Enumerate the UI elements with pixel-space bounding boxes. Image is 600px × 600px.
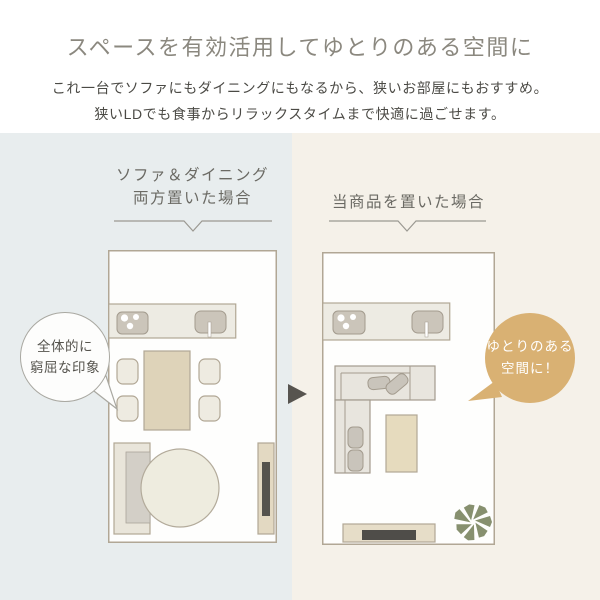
round-rug bbox=[141, 449, 219, 527]
stove-icon bbox=[117, 312, 148, 334]
floorplan-sofa-and-dining bbox=[108, 250, 277, 543]
right-label-pointer-line bbox=[329, 220, 486, 234]
subtitle-line2: 狭いLDでも食事からリラックスタイムまで快適に過ごせます。 bbox=[0, 104, 600, 124]
cushion bbox=[348, 427, 363, 448]
page-title: スペースを有効活用してゆとりのある空間に bbox=[0, 30, 600, 62]
dining-chair bbox=[199, 396, 220, 421]
dining-table bbox=[144, 351, 190, 430]
stove-icon bbox=[333, 311, 365, 334]
right-plan-label-line: 当商品を置いた場合 bbox=[322, 191, 495, 214]
product-table bbox=[386, 415, 417, 472]
tv-screen bbox=[262, 462, 270, 516]
left-label-pointer-line bbox=[114, 220, 272, 234]
cushion bbox=[348, 450, 363, 471]
callout-line1: 全体的に bbox=[37, 336, 93, 357]
subtitle-line1: これ一台でソファにもダイニングにもなるから、狭いお部屋にもおすすめ。 bbox=[0, 78, 600, 98]
left-plan-label: ソファ＆ダイニング 両方置いた場合 bbox=[108, 164, 277, 210]
tv-screen bbox=[362, 530, 416, 540]
right-plan-label: 当商品を置いた場合 bbox=[322, 191, 495, 214]
callout-line2: 窮屈な印象 bbox=[30, 357, 100, 378]
callout-line2: 空間に！ bbox=[501, 358, 559, 380]
arrow-right-icon bbox=[288, 384, 307, 404]
sink-icon bbox=[195, 311, 226, 337]
dining-chair bbox=[199, 359, 220, 384]
roomy-space-callout: ゆとりのある 空間に！ bbox=[485, 313, 575, 403]
left-plan-label-line2: 両方置いた場合 bbox=[108, 187, 277, 210]
infographic-page: スペースを有効活用してゆとりのある空間に これ一台でソファにもダイニングにもなる… bbox=[0, 0, 600, 600]
callout-line1: ゆとりのある bbox=[487, 336, 574, 358]
sink-icon bbox=[412, 311, 443, 337]
left-plan-label-line1: ソファ＆ダイニング bbox=[108, 164, 277, 187]
cramped-impression-callout: 全体的に 窮屈な印象 bbox=[20, 312, 110, 402]
